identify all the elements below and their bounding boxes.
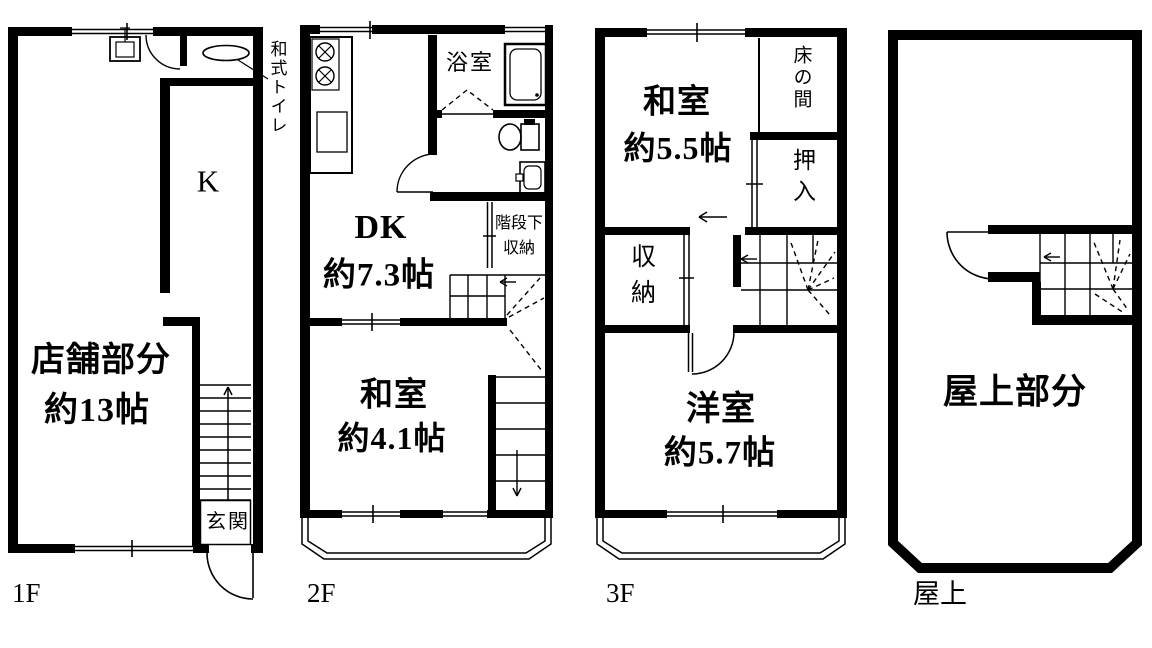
kitchen-counter-icon	[310, 37, 352, 173]
floor-2f-label: 2F	[307, 580, 336, 607]
floorplan-image: 店舗部分 約13帖 K 和式トイレ 玄関 1F 浴室 DK 約7.3帖 階段下 …	[0, 0, 1152, 648]
squat-toilet-icon	[203, 46, 249, 61]
japanese-toilet-label: 和式トイレ	[269, 40, 286, 135]
storage-3f-label: 収納	[629, 243, 654, 315]
roof-door	[947, 232, 993, 279]
storage-sliding-door	[679, 235, 694, 325]
stairs-2f-down	[496, 330, 545, 496]
dk-room-label: DK	[355, 211, 408, 245]
bathroom-label: 浴室	[446, 52, 494, 74]
window	[72, 23, 193, 557]
entry-door	[207, 553, 253, 599]
shop-room-size: 約13帖	[44, 394, 150, 428]
stairs-2f-up	[450, 275, 545, 318]
entrance-label: 玄関	[206, 512, 250, 532]
washbasin-icon	[516, 162, 545, 193]
stairs-1f	[200, 385, 251, 500]
kitchen-label: K	[197, 166, 219, 197]
roof-plan	[893, 35, 1137, 568]
toilet-icon	[499, 119, 539, 150]
sliding-partition	[342, 313, 400, 331]
bathtub-icon	[505, 44, 546, 105]
washitsu-3f-label: 和室	[643, 87, 711, 120]
youshitsu-door	[689, 332, 735, 374]
under-stair-storage-line1: 階段下	[495, 212, 543, 237]
shop-room-label: 店舗部分	[31, 344, 171, 378]
youshitsu-label: 洋室	[686, 393, 756, 427]
washitsu-3f-size: 約5.5帖	[623, 132, 732, 164]
dk-room-size: 約7.3帖	[323, 260, 435, 293]
balcony	[302, 518, 551, 559]
youshitsu-size: 約5.7帖	[664, 438, 776, 471]
floorplan-drawing	[0, 0, 1152, 648]
stairs-roof	[1040, 233, 1132, 315]
oshiire-sliding-door	[746, 140, 763, 227]
floor-3f-label: 3F	[606, 580, 635, 607]
balcony	[597, 518, 845, 559]
oshiire-label: 押入	[791, 148, 814, 210]
tokonoma-label: 床の間	[792, 45, 811, 111]
floor-1f-label: 1F	[12, 580, 41, 607]
toilet-door	[146, 35, 180, 69]
roof-area-label: 屋上部分	[943, 375, 1087, 410]
passage-arrow	[699, 212, 727, 222]
dk-door	[397, 154, 435, 192]
washitsu-2f-label: 和室	[360, 380, 428, 413]
under-stair-storage-line2: 収納	[495, 237, 543, 262]
under-stair-storage-label: 階段下 収納	[495, 212, 543, 262]
folding-door	[442, 90, 493, 110]
stairs-3f	[741, 235, 837, 325]
roof-floor-label: 屋上	[913, 581, 967, 608]
washitsu-2f-size: 約4.1帖	[337, 422, 446, 454]
